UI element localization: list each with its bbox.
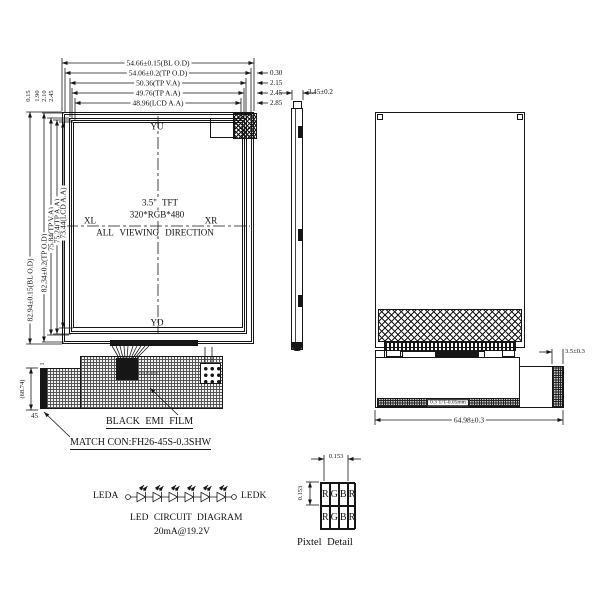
led-rating-label: 20mA@19.2V [154,528,210,538]
pin-first-label: 1 [40,363,46,366]
led-circuit [126,485,237,502]
drawing-lines [0,0,600,600]
fpc-width-dim: 64.98±0.3 [452,416,486,424]
axis-label-yd: YD [151,319,164,328]
offset-tp-od: 0.30 [270,70,282,77]
dim-tp-aa-h: 49.76(TP A.A) [134,89,183,97]
pin-last-label: 45 [31,413,38,420]
offset-lcd-aa: 2.85 [270,100,282,107]
pixel-detail-caption: Pixtel Detail [297,538,353,549]
fpc-fanout-traces [112,346,149,358]
pixel-pitch-v-dim: 0.153 [298,486,305,501]
axis-label-xr: XR [205,217,218,226]
side-thickness-dim: 3.45±0.2 [308,89,333,96]
dim-bl-od-v: 82.94±0.15(BL O.D) [26,257,34,324]
pin-note: PIN45 PIN1 [138,372,160,377]
offset-tp-aa: 2.45 [270,90,282,97]
dim-lcd-aa-h: 48.96(LCD A.A) [130,99,185,107]
offset-v-tp-od: 0.15 [26,90,33,101]
pixel-pitch-h-dim: 0.153 [329,454,344,461]
axis-label-xl: XL [84,217,96,226]
panel-size-label: 3.5" TFT [140,199,180,208]
axis-label-yu: YU [151,123,164,132]
fpc-thickness-label: 0.3 T/T-0.05mm [427,399,469,407]
dim-lcd-aa-v: 73.44(LCD A.A) [59,185,67,240]
dim-bl-od-h: 54.66±0.15(BL O.D) [125,59,192,67]
dim-tp-va-h: 50.36(TP V.A) [134,79,182,87]
offset-tp-va: 2.15 [270,80,282,87]
viewing-direction-label: ALL VIEWING DIRECTION [96,229,213,238]
led-anode-label: LEDA [93,492,118,502]
led-cathode-label: LEDK [241,492,266,502]
dim-tp-od-h: 54.06±0.2(TP O.D) [127,69,189,77]
panel-resolution-label: 320*RGB*480 [128,211,187,220]
emi-leader [150,388,178,415]
fpc-ref-dim: (68.74) [20,380,27,399]
fpc-stiffener-dim: 3.5±0.3 [565,349,585,356]
connector-note: MATCH CON:FH26-45S-0.3SHW [70,438,211,450]
led-diagram-title: LED CIRCUIT DIAGRAM [130,514,242,524]
connector-leader [44,412,70,437]
tft-module-drawing: 54.66±0.15(BL O.D) 54.06±0.2(TP O.D) 50.… [0,0,600,600]
emi-film-note: BLACK EMI FILM [106,417,193,429]
offset-v-lcd-aa: 2.45 [49,90,56,101]
led-symbols [137,485,228,502]
